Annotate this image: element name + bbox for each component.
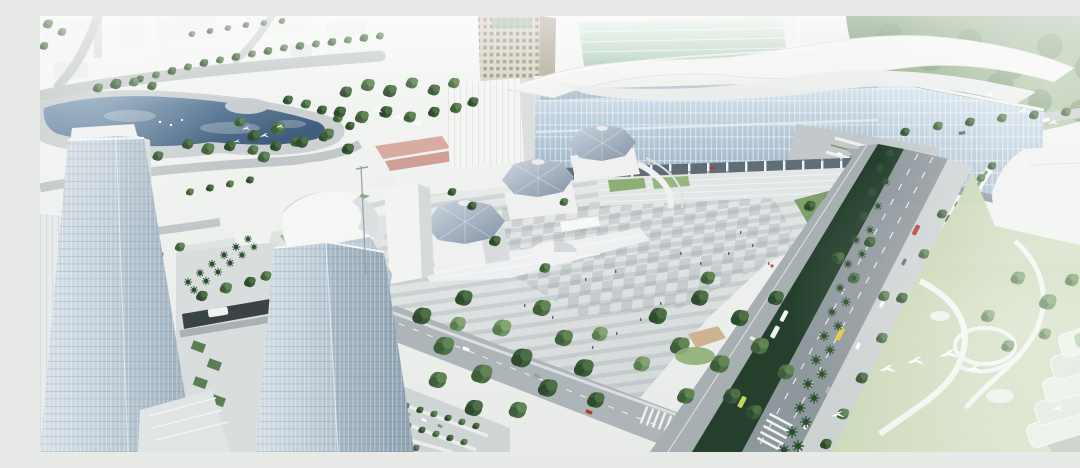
red-car xyxy=(709,167,714,170)
plaza-lawn-patch xyxy=(675,347,715,365)
fly-tower xyxy=(384,184,434,284)
palm-icon xyxy=(801,417,811,427)
palm-icon xyxy=(214,268,221,275)
palm-icon xyxy=(232,243,239,250)
palm-icon xyxy=(245,236,252,243)
aerial-render-figure xyxy=(40,16,1080,452)
aerial-render-canvas xyxy=(40,16,1080,452)
palm-icon xyxy=(239,252,246,259)
palm-icon xyxy=(793,441,804,452)
palm-icon xyxy=(251,244,257,250)
palm-icon xyxy=(202,277,209,284)
palm-icon xyxy=(184,278,191,285)
palm-icon xyxy=(196,269,203,276)
palm-icon xyxy=(226,259,233,266)
palm-icon xyxy=(208,260,215,267)
palm-icon xyxy=(220,251,227,258)
palm-icon xyxy=(795,403,805,413)
palm-icon xyxy=(190,286,197,293)
